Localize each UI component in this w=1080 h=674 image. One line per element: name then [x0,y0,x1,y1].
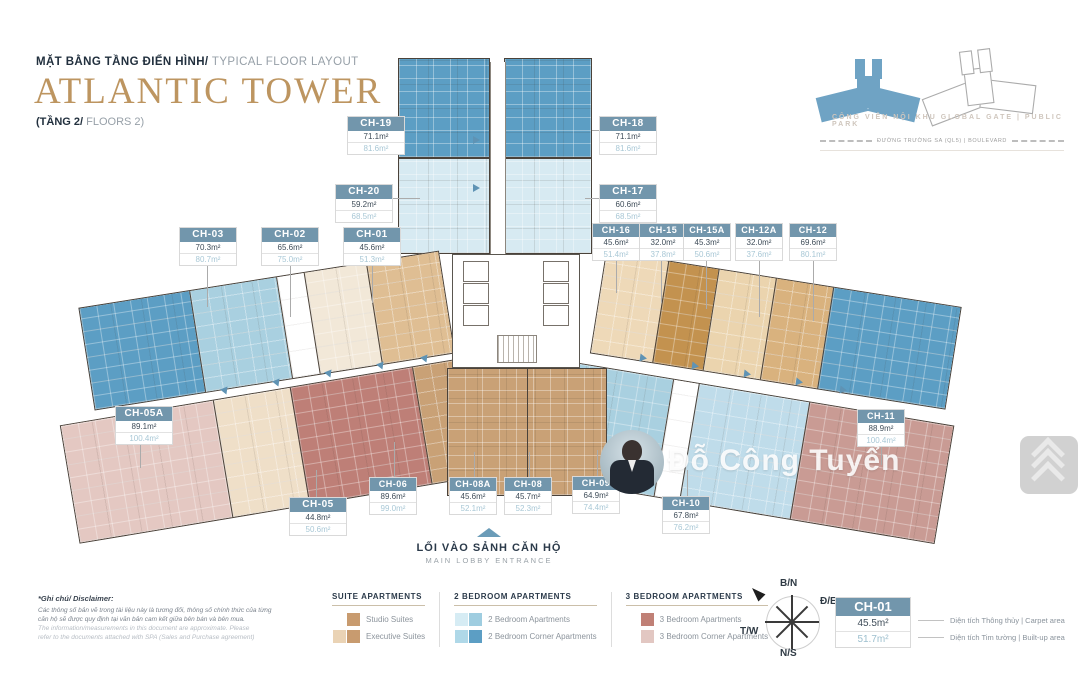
unit-carpet-area: 45.6m² [450,491,496,503]
unit-carpet-area: 45.7m² [505,491,551,503]
unit-carpet-area: 45.6m² [344,242,400,254]
unit-built-area: 81.6m² [348,143,404,154]
unit-label-ch-12a: CH-12A32.0m²37.6m² [736,224,782,260]
legend-group-suite: SUITE APARTMENTS Studio Suites Executive… [318,592,439,647]
unit-carpet-area: 89.6m² [370,491,416,503]
carpet-area-note: Diện tích Thông thủy | Carpet area [918,616,1065,625]
leader-line [616,261,617,293]
unit-carpet-area: 60.6m² [600,199,656,211]
unit-built-area: 80.7m² [180,254,236,265]
color-swatch [641,630,654,643]
unit-block-ch-18 [504,58,592,158]
unit-id: CH-16 [593,224,639,237]
road-solid-line [820,150,1064,151]
compass-north: B/N [780,578,797,589]
legend-group-title: 2 BEDROOM APARTMENTS [454,592,597,606]
unit-built-area: 74.4m² [573,502,619,513]
unit-id: CH-19 [348,117,404,131]
legend-item: Executive Suites [332,630,425,643]
unit-block-ch-03 [80,291,206,409]
unit-id: CH-02 [262,228,318,242]
area-key-carpet: 45.5m² [836,616,910,632]
unit-label-ch-01: CH-0145.6m²51.3m² [344,228,400,265]
color-swatch [347,613,360,626]
unit-label-ch-15a: CH-15A45.3m²50.6m² [684,224,730,260]
leader-line [290,265,291,317]
leader-line [372,265,373,303]
direction-arrow-icon [743,370,751,379]
unit-id: CH-05A [116,407,172,421]
unit-carpet-area: 67.8m² [663,510,709,522]
leader-line [813,261,814,321]
unit-block-ch-02 [190,277,292,391]
area-key: CH-01 45.5m² 51.7m² Diện tích Thông thủy… [836,598,1065,650]
compass-west: T/W [740,626,758,637]
color-swatch [469,630,482,643]
page-subtitle: MẶT BẰNG TẦNG ĐIỂN HÌNH/ TYPICAL FLOOR L… [36,56,359,68]
unit-carpet-area: 71.1m² [348,131,404,143]
park-label: CÔNG VIÊN NỘI KHU GLOBAL GATE | PUBLIC P… [832,114,1080,128]
unit-label-ch-10: CH-1067.8m²76.2m² [663,497,709,533]
color-swatch [347,630,360,643]
elevator-core [452,254,580,368]
color-swatch [641,613,654,626]
watermark-avatar [600,430,664,494]
built-area-note: Diện tích Tim tường | Built-up area [918,633,1065,642]
unit-built-area: 80.1m² [790,249,836,260]
unit-carpet-area: 32.0m² [736,237,782,249]
avatar-person-icon [622,440,642,462]
unit-id: CH-15 [640,224,686,237]
unit-label-ch-16: CH-1645.6m²51.4m² [593,224,639,260]
color-swatch [333,630,346,643]
unit-carpet-area: 32.0m² [640,237,686,249]
unit-label-ch-05a: CH-05A89.1m²100.4m² [116,407,172,444]
unit-label-ch-08: CH-0845.7m²52.3m² [505,478,551,514]
unit-built-area: 76.2m² [663,522,709,533]
unit-built-area: 37.6m² [736,249,782,260]
unit-label-ch-15: CH-1532.0m²37.8m² [640,224,686,260]
leader-line [316,470,317,498]
unit-built-area: 50.6m² [290,524,346,535]
leader-line [597,450,598,477]
compass-south: N/S [780,648,797,659]
leader-line [474,452,475,478]
unit-id: CH-05 [290,498,346,512]
legend: SUITE APARTMENTS Studio Suites Executive… [318,592,782,647]
color-swatch [455,630,468,643]
direction-arrow-icon [375,361,383,370]
unit-id: CH-01 [344,228,400,242]
unit-label-ch-11: CH-1188.9m²100.4m² [858,410,904,446]
leader-line [207,265,208,307]
unit-built-area: 52.1m² [450,503,496,514]
leader-line [394,442,395,478]
unit-carpet-area: 44.8m² [290,512,346,524]
unit-label-ch-18: CH-1871.1m²81.6m² [600,117,656,154]
color-swatch [469,613,482,626]
top-corridor [490,62,506,254]
disclaimer-line: refer to the documents attached with SPA… [38,633,310,642]
unit-built-area: 51.4m² [593,249,639,260]
direction-arrow-icon [795,378,803,387]
unit-carpet-area: 70.3m² [180,242,236,254]
entrance-title: LỐI VÀO SẢNH CĂN HỘ [400,542,578,554]
color-swatch [455,613,468,626]
floorplan-page: MẶT BẰNG TẦNG ĐIỂN HÌNH/ TYPICAL FLOOR L… [0,0,1080,674]
unit-carpet-area: 88.9m² [858,423,904,435]
area-key-card: CH-01 45.5m² 51.7m² [836,598,910,647]
leader-line [392,198,420,199]
unit-built-area: 51.3m² [344,254,400,265]
unit-id: CH-03 [180,228,236,242]
unit-built-area: 50.6m² [684,249,730,260]
floor-vn: (TẦNG 2/ [36,116,83,128]
direction-arrow-icon [219,386,227,395]
legend-group-2br: 2 BEDROOM APARTMENTS 2 Bedroom Apartment… [440,592,611,647]
unit-id: CH-08A [450,478,496,491]
unit-label-ch-17: CH-1760.6m²68.5m² [600,185,656,222]
leader-line [585,198,600,199]
unit-built-area: 37.8m² [640,249,686,260]
disclaimer-line: căn hộ sẽ được quy định tại văn bản cam … [38,615,310,624]
subtitle-vn: MẶT BẰNG TẦNG ĐIỂN HÌNH/ [36,56,209,68]
compass-east: Đ/E [820,596,837,607]
unit-id: CH-12 [790,224,836,237]
floor-label: (TẦNG 2/ FLOORS 2) [36,116,144,128]
unit-id: CH-18 [600,117,656,131]
direction-arrow-icon [323,369,331,378]
watermark-name: Đỗ Công Tuyển [668,444,900,478]
leader-line [592,130,600,131]
unit-label-ch-06: CH-0689.6m²99.0m² [370,478,416,514]
legend-item: 2 Bedroom Apartments [454,613,597,626]
unit-built-area: 75.0m² [262,254,318,265]
leader-line [529,452,530,478]
direction-arrow-icon [271,378,279,387]
direction-arrow-icon [419,354,427,363]
legend-group-title: SUITE APARTMENTS [332,592,425,606]
unit-id: CH-20 [336,185,392,199]
direction-arrow-icon [839,386,847,395]
subtitle-en: TYPICAL FLOOR LAYOUT [209,56,359,68]
legend-item: 2 Bedroom Corner Apartments [454,630,597,643]
unit-built-area: 52.3m² [505,503,551,514]
unit-carpet-area: 69.6m² [790,237,836,249]
unit-carpet-area: 65.6m² [262,242,318,254]
entrance-subtitle: MAIN LOBBY ENTRANCE [400,556,578,565]
leader-line [140,444,141,468]
area-key-built: 51.7m² [836,632,910,647]
unit-built-area: 81.6m² [600,143,656,154]
unit-id: CH-08 [505,478,551,491]
unit-built-area: 68.5m² [336,211,392,222]
leader-line [759,261,760,317]
road-dash-line [820,140,872,142]
unit-carpet-area: 45.6m² [593,237,639,249]
unit-id: CH-06 [370,478,416,491]
unit-id: CH-17 [600,185,656,199]
direction-arrow-icon [473,136,480,144]
unit-label-ch-12: CH-1269.6m²80.1m² [790,224,836,260]
unit-block-ch-12 [817,288,961,409]
entrance-arrow-icon [477,528,501,537]
unit-built-area: 68.5m² [600,211,656,222]
disclaimer: *Ghi chú/ Disclaimer: Các thông số bản v… [38,594,310,642]
unit-carpet-area: 45.3m² [684,237,730,249]
page-title: ATLANTIC TOWER [34,70,382,113]
core-stairs [497,335,537,363]
compass: B/N Đ/E T/W N/S [744,580,844,670]
road-label: ĐƯỜNG TRƯỜNG SA (QL5) | BOULEVARD [877,138,1007,144]
unit-carpet-area: 71.1m² [600,131,656,143]
tower-neighbor-icon [919,40,1037,144]
disclaimer-heading: *Ghi chú/ Disclaimer: [38,594,310,603]
unit-id: CH-10 [663,497,709,510]
direction-arrow-icon [639,354,647,363]
entrance-marker: LỐI VÀO SẢNH CĂN HỘ MAIN LOBBY ENTRANCE [400,528,578,565]
suite-block-left [366,252,454,364]
tower-atlantic-icon [818,56,918,141]
direction-arrow-icon [473,184,480,192]
floor-en: FLOORS 2) [83,116,144,128]
legend-item: Studio Suites [332,613,425,626]
unit-label-ch-20: CH-2059.2m²68.5m² [336,185,392,222]
unit-label-ch-02: CH-0265.6m²75.0m² [262,228,318,265]
unit-built-area: 99.0m² [370,503,416,514]
unit-carpet-area: 89.1m² [116,421,172,433]
direction-arrow-icon [691,362,699,371]
unit-label-ch-05: CH-0544.8m²50.6m² [290,498,346,535]
road-dash-line [1012,140,1064,142]
unit-built-area: 100.4m² [116,433,172,444]
compass-needle-icon [749,585,766,602]
road-label-row: ĐƯỜNG TRƯỜNG SA (QL5) | BOULEVARD [820,138,1064,144]
leader-line [661,261,662,303]
brand-chevron-icon [1020,436,1078,494]
unit-label-ch-19: CH-1971.1m²81.6m² [348,117,404,154]
area-key-unit-id: CH-01 [836,598,910,616]
disclaimer-line: The information/measurements in this doc… [38,624,310,633]
unit-carpet-area: 59.2m² [336,199,392,211]
unit-id: CH-12A [736,224,782,237]
disclaimer-line: Các thông số bản vẽ trong tài liệu này l… [38,606,310,615]
unit-id: CH-11 [858,410,904,423]
unit-block-ch-20 [398,158,490,254]
leader-line [706,261,707,309]
unit-id: CH-15A [684,224,730,237]
unit-label-ch-03: CH-0370.3m²80.7m² [180,228,236,265]
unit-label-ch-08a: CH-08A45.6m²52.1m² [450,478,496,514]
unit-block-ch-17 [504,158,592,254]
